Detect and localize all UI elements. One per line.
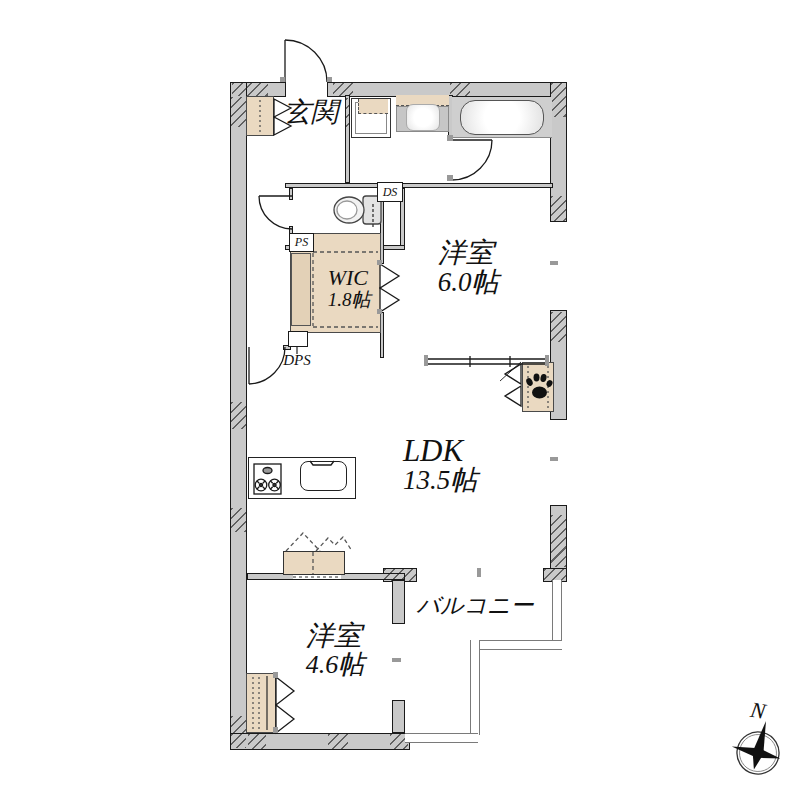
ds-label: DS — [383, 185, 398, 200]
wall-sanitary-bottom — [285, 183, 553, 188]
ps-shaft-box: PS — [289, 233, 314, 252]
counter-flap-line — [316, 537, 352, 551]
window-bedroom2-balcony — [392, 624, 405, 700]
wic-pillar — [291, 253, 311, 326]
balcony-railing-east — [552, 580, 562, 648]
bedroom2-closet-folding-door — [273, 672, 294, 733]
ldk-name: LDK — [403, 435, 477, 466]
wic-label: WIC 1.8帖 — [328, 267, 371, 309]
window-bedroom1-east — [550, 222, 567, 310]
wall-hatch — [384, 569, 416, 581]
shoe-cabinet — [246, 96, 274, 136]
bedroom2-closet — [246, 673, 276, 733]
wall-hatch — [248, 734, 266, 749]
dps-label: DPS — [283, 353, 311, 368]
wall-hatch — [551, 515, 566, 567]
wic-size: 1.8帖 — [328, 290, 371, 309]
wall-hatch — [328, 734, 348, 749]
counter-cabinet — [283, 551, 345, 575]
toilet-door-swing — [259, 196, 292, 229]
wall-hatch — [333, 83, 353, 96]
bathroom-door-swing — [447, 135, 492, 181]
washbasin — [406, 104, 440, 131]
toilet-icon — [334, 196, 381, 229]
pet-closet — [522, 362, 554, 412]
ps-label: PS — [295, 235, 308, 250]
floorplan: DS PS DPS 玄関 洋室 6.0帖 WIC 1.8帖 LDK 13.5帖 … — [0, 0, 800, 800]
wall-hatch — [231, 402, 246, 429]
balcony-railing-south — [405, 733, 478, 743]
hall-ldk-door-swing — [249, 347, 285, 384]
bedroom2-label: 洋室 4.6帖 — [306, 622, 365, 678]
ds-shaft-box: DS — [377, 182, 403, 202]
wall-hatch — [551, 83, 566, 117]
balcony-label: バルコニー — [416, 594, 533, 617]
bedroom1-size: 6.0帖 — [438, 269, 499, 296]
wic-name: WIC — [328, 267, 371, 289]
compass-north-label: N — [749, 699, 767, 723]
wall-hatch — [551, 312, 566, 342]
bedroom1-label: 洋室 6.0帖 — [438, 239, 499, 296]
balcony-railing-south-east — [470, 640, 480, 735]
counter-flap-line — [286, 533, 320, 551]
bedroom1-name: 洋室 — [438, 239, 499, 267]
ldk-size: 13.5帖 — [403, 467, 477, 494]
compass-rose-icon — [727, 714, 789, 778]
wall-hatch — [551, 196, 566, 222]
bathtub — [460, 100, 544, 135]
bedroom2-size: 4.6帖 — [306, 652, 365, 678]
wall-bedroom2-right-lower — [392, 700, 405, 733]
wall-hatch — [231, 508, 246, 532]
wall-toilet-left-a — [289, 188, 293, 200]
window-ldk-balcony — [417, 568, 543, 582]
wall-hatch — [232, 83, 268, 96]
bedroom2-name: 洋室 — [306, 622, 365, 650]
dps-shaft-box — [288, 331, 308, 347]
wall-hatch — [231, 97, 246, 127]
wall-hatch — [346, 98, 349, 128]
ldk-label: LDK 13.5帖 — [403, 435, 477, 494]
wall-hatch — [450, 83, 470, 96]
balcony-railing-step — [478, 640, 562, 650]
entrance-door-swing — [280, 40, 332, 82]
wall-bedroom2-right-upper — [392, 580, 405, 624]
pet-closet-folding-door — [505, 364, 521, 406]
washer-shelf — [358, 99, 388, 114]
kitchen-sink — [300, 461, 347, 491]
window-ldk-east — [550, 420, 567, 505]
entrance-label: 玄関 — [284, 99, 338, 126]
wall-hatch — [231, 716, 246, 748]
